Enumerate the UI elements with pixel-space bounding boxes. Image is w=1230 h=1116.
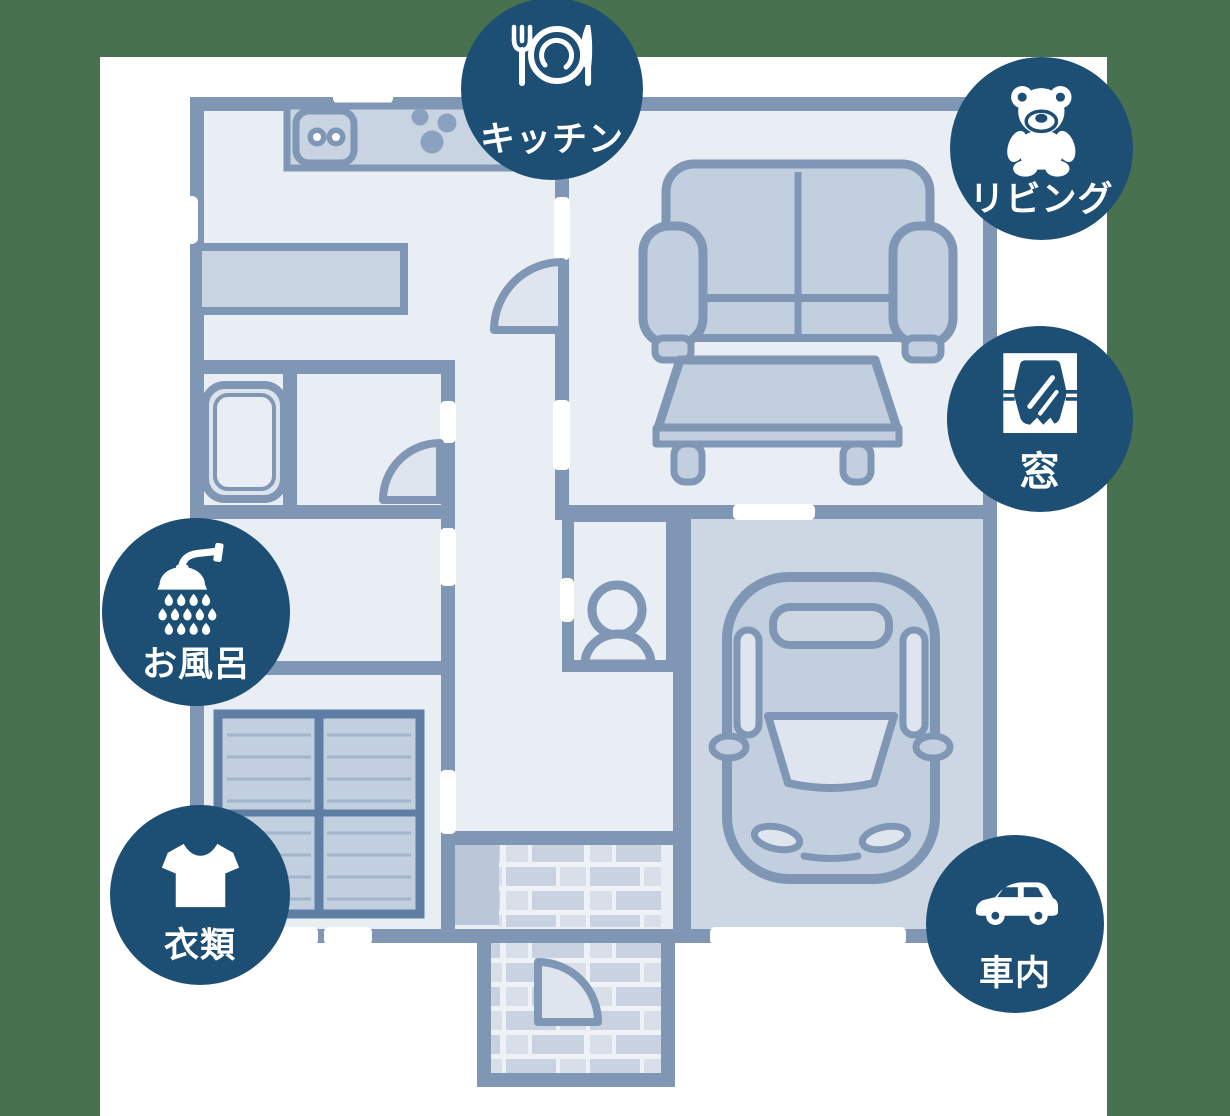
toilet-figure [585, 585, 651, 664]
badge-clothes: 衣類 [110, 805, 290, 985]
car-mirror-right [916, 736, 950, 758]
kitchen-shelf [198, 247, 404, 311]
entrance-step [455, 845, 499, 925]
badge-car-label: 車内 [979, 956, 1051, 993]
bathroom-area [205, 385, 284, 499]
car-rear-window [773, 607, 889, 645]
badge-window: 窓 [947, 326, 1133, 512]
badge-bath: お風呂 [102, 518, 290, 706]
badge-living: リビング [950, 57, 1133, 240]
badge-bath-label: お風呂 [142, 647, 250, 684]
teddy-bear-icon [991, 78, 1092, 179]
badge-kitchen: キッチン [461, 0, 643, 180]
badge-car: 車内 [926, 835, 1104, 1013]
badge-window-label: 窓 [1020, 451, 1061, 493]
car-windshield [768, 716, 894, 788]
sofa [643, 164, 953, 360]
badge-living-label: リビング [969, 182, 1113, 219]
window-curtains-icon [989, 345, 1091, 447]
entrance-bricks [499, 843, 661, 927]
t-shirt-icon [151, 826, 250, 925]
illustration-stage: キッチン リビング 窓 [0, 0, 1230, 1116]
shower-head-icon [144, 540, 247, 643]
fork-plate-knife-icon [502, 19, 602, 119]
badge-kitchen-label: キッチン [480, 122, 624, 159]
badge-clothes-label: 衣類 [164, 928, 236, 965]
car-top-view [712, 577, 950, 879]
car-mirror-left [712, 736, 746, 758]
water-drops [159, 594, 217, 635]
car-side-icon [966, 855, 1064, 953]
